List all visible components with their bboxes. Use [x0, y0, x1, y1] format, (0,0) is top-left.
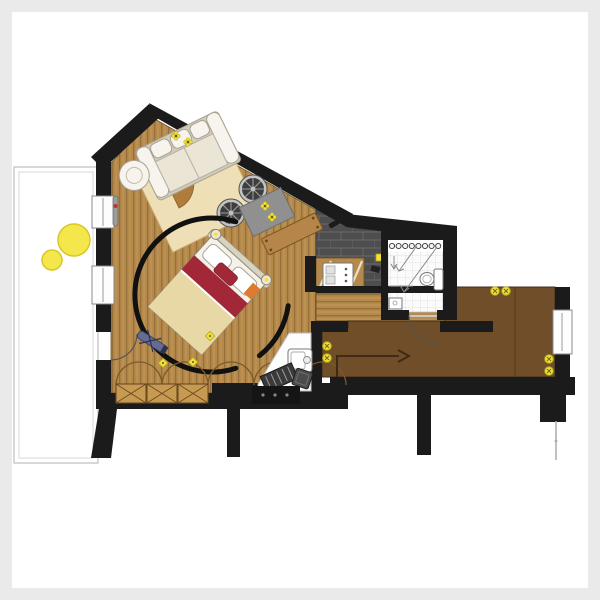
- wall-left-3: [96, 304, 111, 332]
- wall-corridor-top: [316, 286, 445, 293]
- screenshot-canvas: [0, 0, 600, 600]
- console-dot: [261, 393, 264, 396]
- wall-bath-right: [443, 240, 457, 320]
- cooktop-knob: [345, 268, 348, 271]
- dim-line-bottom-right: [555, 421, 558, 460]
- potted-plant-small: [42, 250, 62, 270]
- cooktop-plate-2: [326, 276, 335, 284]
- shower-drain-box: [389, 298, 402, 309]
- wardrobe-box-2: [147, 384, 177, 403]
- wall-bath-top: [381, 228, 457, 240]
- floor-plan-svg: [0, 0, 600, 600]
- wall-counter-side: [305, 256, 316, 292]
- radiator-valve: [114, 204, 118, 208]
- balcony-outline: [14, 167, 98, 463]
- console-dot: [285, 393, 288, 396]
- wall-left-2: [96, 228, 111, 266]
- wall-left-1: [96, 160, 111, 196]
- cooktop-knob: [345, 280, 348, 283]
- wall-right-1: [555, 287, 570, 312]
- console-dot: [273, 393, 276, 396]
- console: [252, 386, 300, 404]
- wall-hallway-bottom: [330, 377, 575, 395]
- wall-corner-right: [540, 390, 566, 422]
- wall-corridor-stub: [316, 321, 348, 332]
- wall-hall-stub: [440, 321, 493, 332]
- wardrobe-box-1: [116, 384, 146, 403]
- wall-bath-bottom-right: [437, 310, 457, 320]
- wall-leg-3: [417, 395, 431, 455]
- washstand-tap: [304, 357, 311, 364]
- cooktop-knob: [345, 274, 348, 277]
- wall-bath-left: [381, 240, 388, 314]
- cooktop-plate-1: [326, 266, 335, 274]
- wall-bath-bottom-left: [381, 310, 409, 320]
- potted-plant-large: [58, 224, 90, 256]
- wall-right-2: [555, 352, 570, 392]
- wall-radiator: [113, 196, 118, 226]
- balcony: [14, 167, 98, 463]
- wall-leg-2: [227, 409, 240, 457]
- wardrobe-box-3: [178, 384, 208, 403]
